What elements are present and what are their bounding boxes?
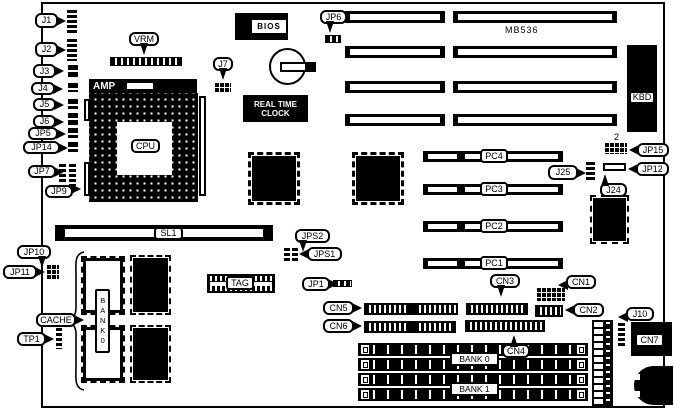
callout-jp11: JP11 (3, 265, 37, 279)
bios-chip: BIOS (235, 13, 288, 40)
cache-chip-3 (133, 258, 168, 312)
pci-label-pc3: PC3 (480, 182, 508, 196)
bios-label: BIOS (252, 20, 286, 33)
isa-slot-2 (345, 46, 617, 58)
pci-slot-pc1: PC1 (423, 258, 563, 269)
header-cn4 (465, 320, 545, 332)
din-keyboard-connector (634, 366, 673, 405)
cn7-label: CN7 (635, 333, 664, 347)
cpu-label: CPU (131, 139, 160, 153)
callout-jp9: JP9 (45, 185, 73, 198)
cpu-clip-top (84, 99, 90, 121)
header-cn3 (466, 303, 528, 315)
battery-clip-tip (305, 63, 316, 71)
power-connector (592, 320, 613, 407)
connector-jp5 (68, 128, 78, 138)
callout-cn3: CN3 (490, 274, 520, 288)
bank1-label: BANK 1 (450, 382, 499, 396)
amp-label: AMP (93, 81, 115, 92)
pci-slot-pc3: PC3 (423, 184, 563, 195)
callout-cn2: CN2 (573, 303, 604, 317)
callout-jp14: JP14 (23, 141, 60, 154)
header-cn6 (364, 321, 456, 333)
chipset-qfp-right (352, 152, 404, 205)
callout-cn5: CN5 (323, 301, 354, 315)
callout-j1: J1 (35, 13, 58, 28)
motherboard-diagram: J1 J2 J3 J4 J5 J6 JP5 JP14 JP7 JP9 VRM J… (0, 0, 674, 415)
isa-slot-3 (345, 81, 617, 93)
callout-j4: J4 (31, 82, 55, 95)
cpu-clip-bottom (84, 162, 90, 196)
connector-j4 (68, 83, 78, 92)
callout-jp5: JP5 (28, 127, 58, 140)
jumper-jps-b (292, 248, 298, 263)
connector-j7 (215, 83, 231, 93)
pci-slot-pc4: PC4 (423, 151, 563, 162)
callout-j24: J24 (600, 183, 627, 197)
callout-j2: J2 (35, 42, 58, 57)
callout-cn4: CN4 (502, 344, 530, 358)
callout-jp7: JP7 (28, 165, 56, 178)
connector-cn1 (537, 288, 565, 301)
callout-j25: J25 (548, 165, 578, 180)
callout-tp1: TP1 (17, 332, 46, 346)
connector-j6 (68, 113, 78, 127)
callout-j3: J3 (33, 64, 56, 78)
connector-j10 (618, 323, 625, 348)
rtc-chip: REAL TIME CLOCK (243, 95, 308, 122)
isa-slot-1 (345, 11, 617, 23)
callout-jp6: JP6 (320, 10, 347, 24)
j24-chip (593, 198, 626, 241)
connector-j1 (67, 10, 77, 34)
jumper-jps-a (284, 248, 290, 263)
callout-jp15: JP15 (637, 143, 669, 157)
jp15-pin2-label: 2 (614, 132, 619, 142)
connector-cn2 (535, 305, 563, 317)
pci-label-pc2: PC2 (480, 219, 508, 233)
callout-cn1: CN1 (566, 275, 596, 289)
rtc-label-line2: CLOCK (261, 109, 289, 118)
callout-jp10: JP10 (17, 245, 51, 259)
callout-cn6: CN6 (323, 319, 354, 333)
connector-jp15 (605, 143, 627, 154)
callout-j10: J10 (626, 307, 654, 321)
callout-jp1: JP1 (302, 277, 330, 291)
pci-label-pc1: PC1 (480, 256, 508, 270)
callout-j7: J7 (213, 57, 233, 71)
connector-jp14 (68, 142, 78, 152)
connector-j25 (586, 162, 595, 182)
pci-label-pc4: PC4 (480, 149, 508, 163)
header-cn5 (364, 303, 458, 315)
bank0-label: BANK 0 (450, 352, 499, 366)
connector-jp7-b (69, 164, 76, 186)
cache-bank0-label: BANK0 (95, 289, 110, 353)
isa-slot-4 (345, 114, 617, 126)
connector-jp6 (325, 35, 341, 43)
callout-cache: CACHE (36, 313, 76, 327)
jumper-jp12 (603, 163, 626, 171)
connector-j3 (68, 65, 78, 78)
connector-jp10-jp11 (47, 265, 59, 279)
board-model-label: MB536 (505, 25, 539, 35)
connector-tp1 (56, 328, 62, 349)
rtc-label-line1: REAL TIME (254, 100, 297, 109)
callout-j5: J5 (33, 98, 56, 111)
cache-chip-4 (133, 328, 168, 380)
tag-label: TAG (226, 276, 254, 290)
sl1-label: SL1 (154, 227, 183, 240)
pci-slot-pc2: PC2 (423, 221, 563, 232)
cpu-socket-retainer: AMP (89, 79, 197, 93)
callout-vrm: VRM (129, 32, 159, 46)
kbd-connector (627, 45, 657, 132)
chipset-qfp-left (248, 152, 300, 205)
connector-j2 (67, 39, 77, 61)
cpu-socket-lever (199, 96, 206, 196)
vrm-header (110, 57, 182, 66)
kbd-label: KBD (629, 91, 655, 104)
callout-jp12: JP12 (636, 162, 669, 176)
connector-j5 (68, 99, 78, 109)
callout-jps2: JPS2 (295, 229, 330, 243)
callout-jps1: JPS1 (307, 247, 342, 261)
